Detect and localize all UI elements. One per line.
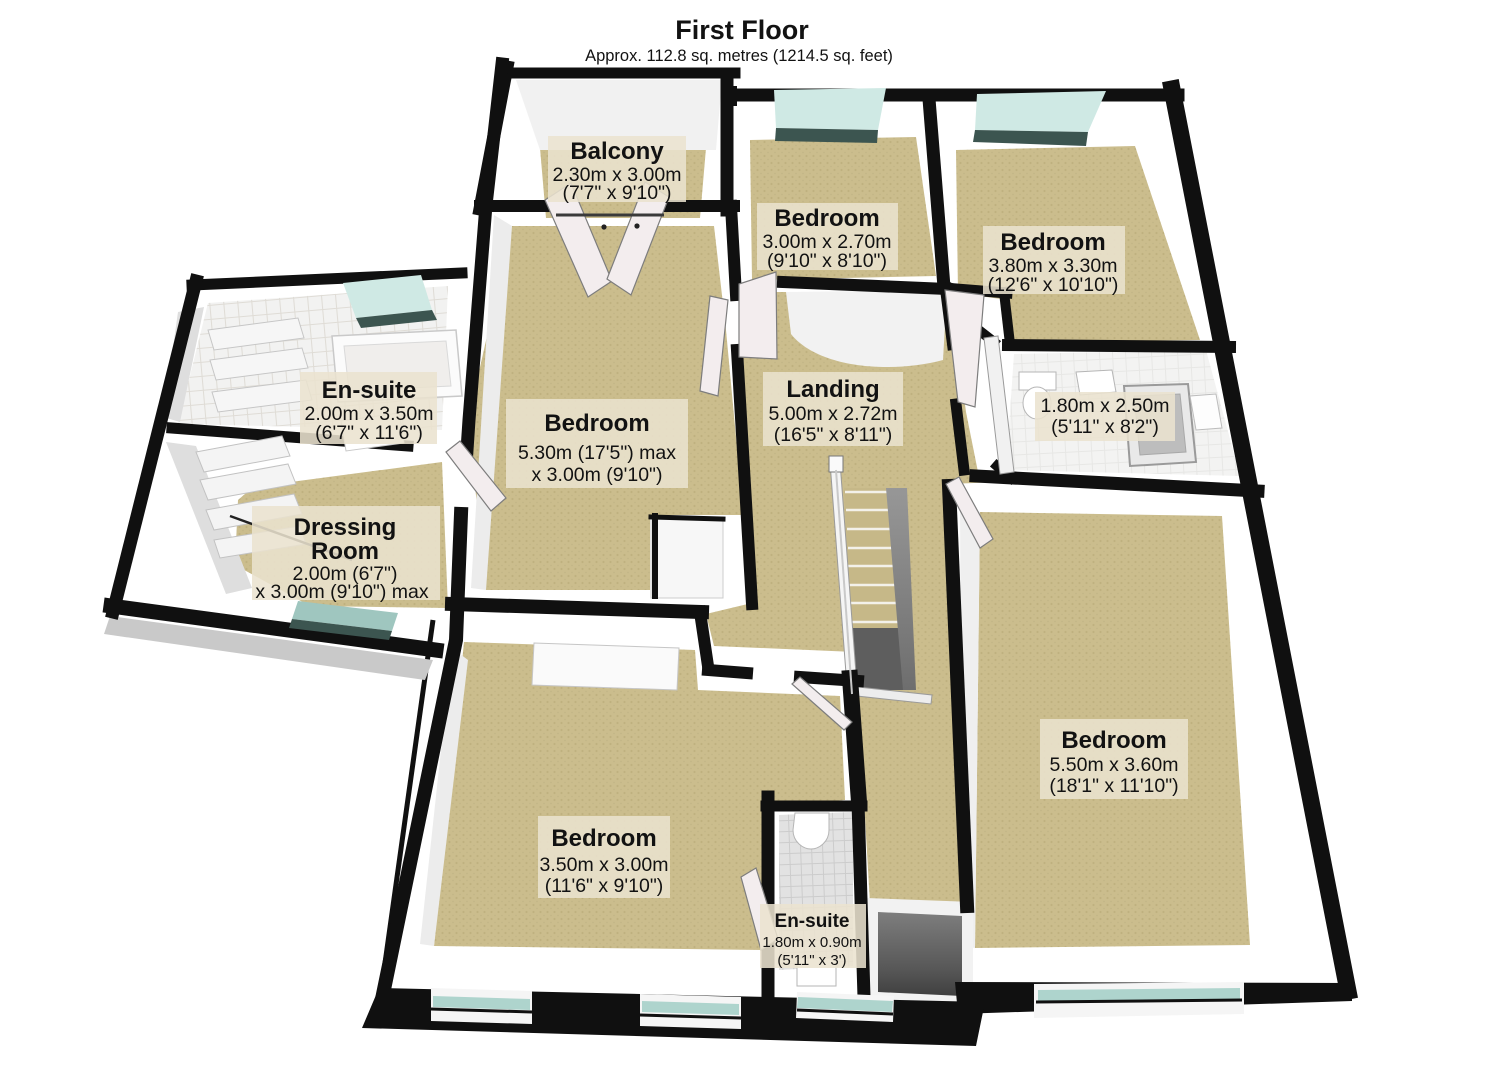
svg-text:Bedroom: Bedroom	[1000, 229, 1105, 256]
svg-text:En-suite: En-suite	[322, 377, 417, 404]
svg-text:En-suite: En-suite	[775, 911, 850, 932]
svg-text:(18'1" x 11'10"): (18'1" x 11'10")	[1049, 775, 1178, 797]
svg-text:Bedroom: Bedroom	[1061, 727, 1166, 754]
svg-text:(12'6" x 10'10"): (12'6" x 10'10")	[988, 274, 1119, 296]
svg-text:(9'10" x 8'10"): (9'10" x 8'10")	[767, 250, 887, 272]
svg-text:Bedroom: Bedroom	[774, 205, 879, 232]
svg-text:(5'11" x 8'2"): (5'11" x 8'2")	[1051, 416, 1159, 438]
svg-text:(5'11" x 3'): (5'11" x 3')	[777, 952, 846, 969]
svg-text:5.50m x 3.60m: 5.50m x 3.60m	[1050, 754, 1179, 776]
svg-text:Room: Room	[311, 538, 379, 565]
svg-text:Dressing: Dressing	[294, 514, 397, 541]
svg-text:x 3.00m (9'10"): x 3.00m (9'10")	[532, 464, 663, 486]
svg-text:(11'6" x 9'10"): (11'6" x 9'10")	[545, 875, 664, 897]
svg-text:Bedroom: Bedroom	[551, 825, 656, 852]
svg-text:x 3.00m (9'10") max: x 3.00m (9'10") max	[255, 581, 428, 603]
svg-text:1.80m x 2.50m: 1.80m x 2.50m	[1041, 395, 1170, 417]
svg-text:5.30m (17'5") max: 5.30m (17'5") max	[518, 442, 676, 464]
svg-text:3.50m x 3.00m: 3.50m x 3.00m	[540, 854, 669, 876]
svg-text:Landing: Landing	[786, 376, 879, 403]
svg-text:(16'5" x 8'11"): (16'5" x 8'11")	[774, 424, 893, 446]
svg-text:1.80m x 0.90m: 1.80m x 0.90m	[762, 934, 861, 951]
svg-text:Approx. 112.8 sq. metres (1214: Approx. 112.8 sq. metres (1214.5 sq. fee…	[585, 47, 893, 65]
svg-text:(7'7" x 9'10"): (7'7" x 9'10")	[562, 182, 671, 204]
svg-text:Balcony: Balcony	[570, 138, 664, 165]
svg-text:First Floor: First Floor	[675, 15, 809, 45]
svg-text:Bedroom: Bedroom	[544, 410, 649, 437]
svg-text:5.00m x 2.72m: 5.00m x 2.72m	[769, 403, 898, 425]
svg-text:(6'7" x 11'6"): (6'7" x 11'6")	[315, 422, 423, 444]
